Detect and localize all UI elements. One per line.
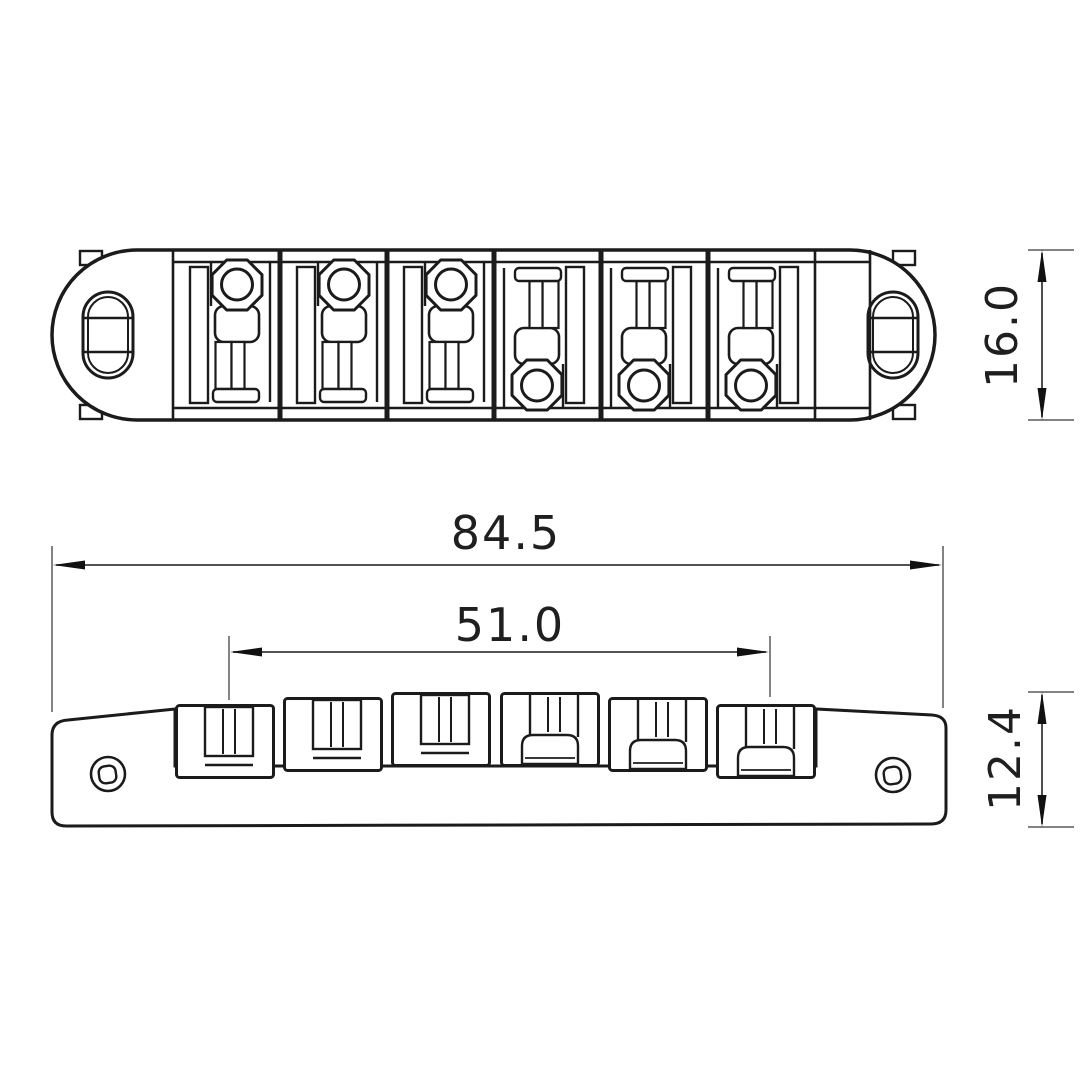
saddle-block — [393, 694, 490, 766]
dimension-top-view-height: 16.0 — [977, 250, 1074, 420]
dimension-saddle-span: 51.0 — [229, 598, 770, 700]
post-slot-right — [868, 292, 918, 378]
saddle-block — [285, 699, 382, 771]
dim-label-overall-width: 84.5 — [451, 506, 561, 560]
side-view — [52, 694, 946, 827]
post-hole-right — [876, 758, 910, 792]
post-slot-left — [83, 292, 133, 378]
technical-drawing-page: 16.0 84.5 51.0 12.4 — [0, 0, 1080, 1080]
dim-label-saddle-span: 51.0 — [455, 598, 565, 652]
post-hole-left — [91, 757, 125, 791]
saddle-block — [502, 694, 599, 766]
saddle-block — [610, 699, 707, 771]
saddle-block — [177, 706, 274, 778]
bridge-technical-drawing: 16.0 84.5 51.0 12.4 — [0, 0, 1080, 1080]
dimension-side-view-height: 12.4 — [980, 692, 1074, 827]
top-view — [52, 250, 935, 420]
dim-label-side-view-height: 12.4 — [980, 705, 1031, 811]
dim-label-top-view-height: 16.0 — [977, 282, 1028, 388]
saddle-block — [718, 706, 815, 778]
